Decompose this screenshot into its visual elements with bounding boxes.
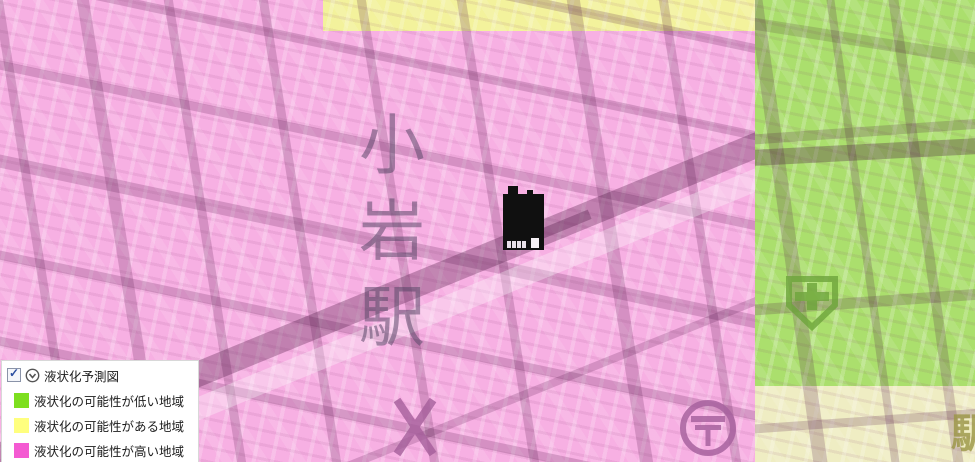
building-windows bbox=[507, 197, 540, 239]
building-storefront bbox=[507, 241, 526, 248]
map-canvas[interactable]: 小岩駅 駅 bbox=[0, 0, 975, 462]
road bbox=[755, 406, 975, 436]
layer-checkbox[interactable] bbox=[7, 368, 21, 382]
station-name-label: 小岩駅 bbox=[354, 110, 420, 368]
road bbox=[881, 0, 975, 462]
legend-item-label: 液状化の可能性が低い地域 bbox=[34, 391, 184, 410]
road bbox=[755, 17, 975, 76]
legend-item-label: 液状化の可能性が高い地域 bbox=[34, 441, 184, 460]
chevron-down-icon[interactable] bbox=[25, 368, 40, 383]
road bbox=[755, 0, 843, 462]
legend-item-possible: 液状化の可能性がある地域 bbox=[14, 418, 198, 433]
building-roof bbox=[508, 186, 518, 194]
legend-item-high: 液状化の可能性が高い地域 bbox=[14, 443, 198, 458]
low-risk-swatch bbox=[14, 393, 29, 408]
street-grid-east bbox=[755, 0, 975, 462]
high-risk-swatch bbox=[14, 443, 29, 458]
building-door bbox=[531, 238, 539, 248]
possible-risk-swatch bbox=[14, 418, 29, 433]
legend-header: 液状化予測図 bbox=[7, 367, 198, 383]
partial-map-label: 駅 bbox=[951, 414, 975, 454]
building-marker-icon bbox=[503, 186, 544, 250]
legend-panel: 液状化予測図 液状化の可能性が低い地域 液状化の可能性がある地域 液状化の可能性… bbox=[2, 361, 198, 462]
legend-item-label: 液状化の可能性がある地域 bbox=[34, 416, 184, 435]
legend-item-low: 液状化の可能性が低い地域 bbox=[14, 393, 198, 408]
legend-title: 液状化予測図 bbox=[44, 366, 119, 385]
